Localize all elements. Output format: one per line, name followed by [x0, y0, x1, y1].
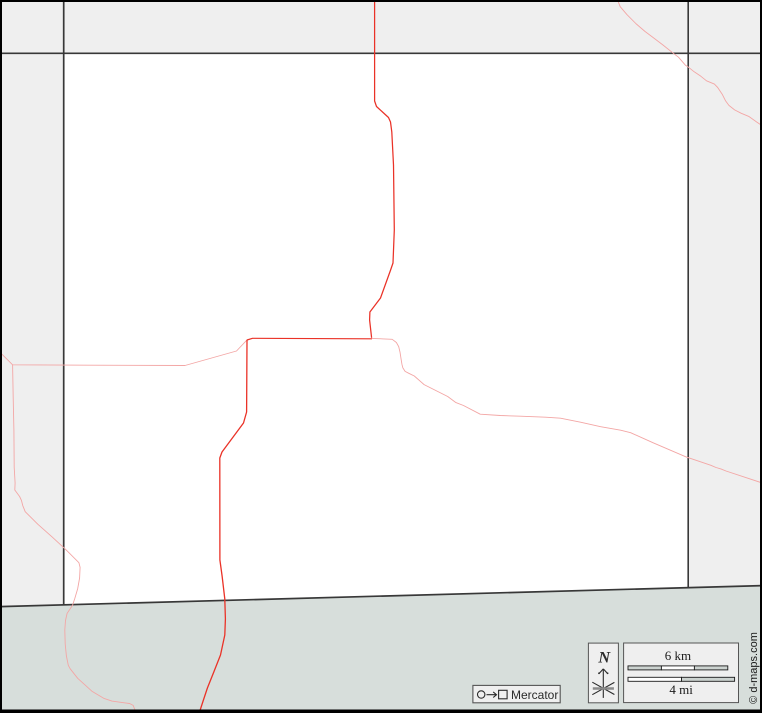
svg-text:N: N — [597, 648, 611, 667]
svg-text:Mercator: Mercator — [511, 688, 558, 702]
svg-text:4 mi: 4 mi — [669, 682, 693, 697]
svg-text:6 km: 6 km — [665, 648, 691, 663]
svg-text:© d-maps.com: © d-maps.com — [748, 632, 760, 704]
